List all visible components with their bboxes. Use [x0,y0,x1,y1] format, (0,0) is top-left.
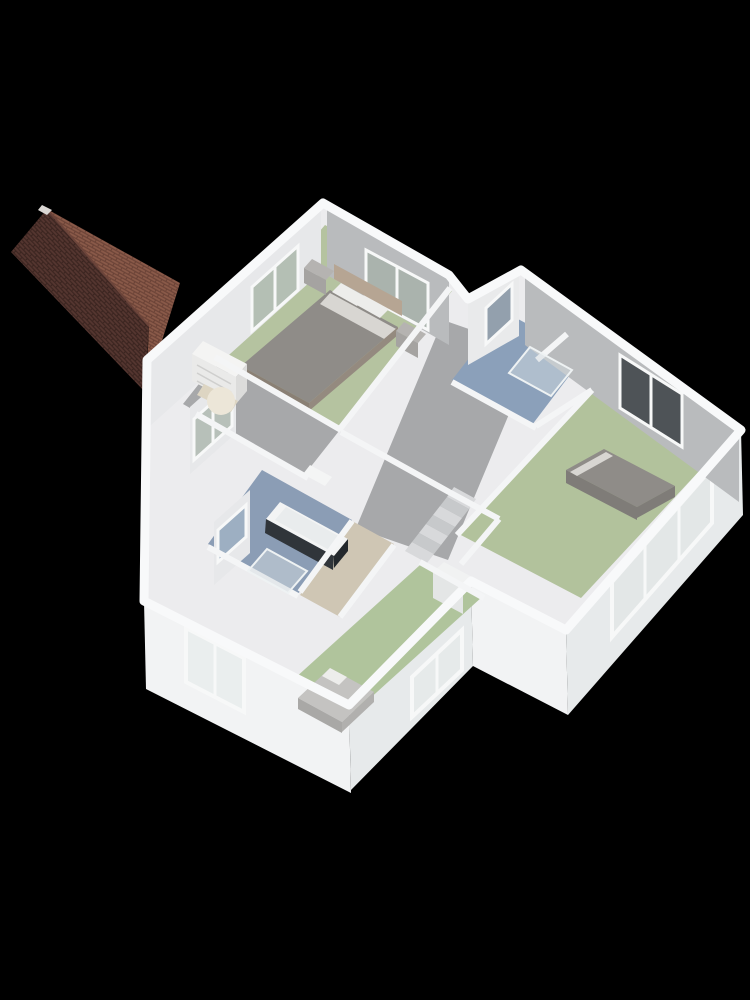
armchair-seat [207,387,235,415]
floorplan-3d-render [0,0,750,1000]
floorplan-stage [0,0,750,1000]
